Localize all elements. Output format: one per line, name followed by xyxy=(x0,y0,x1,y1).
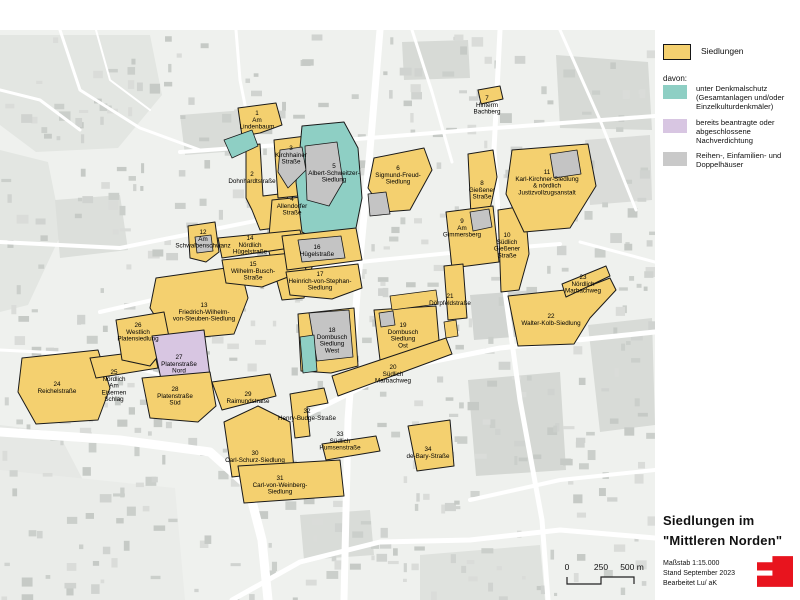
park-area xyxy=(402,40,470,80)
map-document: 1AmLindenbaum2Dohnhardtstraße3Kirchhaine… xyxy=(0,0,800,600)
scale-bar-label: 500 m xyxy=(620,562,644,572)
stand-text: Stand September 2023 xyxy=(663,570,735,577)
side-panel: Siedlungen davon: unter Denkmalschutz (G… xyxy=(660,0,800,600)
nachverdichtung-swatch xyxy=(663,119,687,133)
denkmalschutz-label: unter Denkmalschutz (Gesamtanlagen und/o… xyxy=(696,85,784,112)
settlement-21 xyxy=(444,264,467,320)
siedlungen-label: Siedlungen xyxy=(701,47,744,57)
legend-row-nachverdichtung: bereits beantragte oder abgeschlossene N… xyxy=(663,119,775,146)
overlay-gray xyxy=(470,209,492,231)
overlay-gray xyxy=(368,192,390,216)
bearbeitet-text: Bearbeitet Lu/ aK xyxy=(663,580,717,587)
davon-label: davon: xyxy=(663,74,687,83)
overlay-gray xyxy=(379,311,395,327)
siedlungen-swatch xyxy=(663,44,691,60)
scale-text: Maßstab 1:15.000 xyxy=(663,560,719,567)
scale-bar-label: 250 xyxy=(594,562,608,572)
denkmalschutz-swatch xyxy=(663,85,687,99)
legend-row-denkmalschutz: unter Denkmalschutz (Gesamtanlagen und/o… xyxy=(663,85,784,112)
overlay-gray xyxy=(550,150,581,178)
reihenhaeuser-label: Reihen-, Einfamilien- und Doppelhäuser xyxy=(696,152,781,170)
legend-row-siedlungen: Siedlungen xyxy=(663,44,744,60)
stadtplanungsamt-logo xyxy=(757,556,793,587)
map-title-line2: "Mittleren Norden" xyxy=(663,533,782,548)
map-title-line1: Siedlungen im xyxy=(663,513,754,528)
overlay-gray xyxy=(298,236,345,262)
scale-bar-label: 0 xyxy=(565,562,570,572)
overlay-yellow xyxy=(444,320,458,338)
nachverdichtung-label: bereits beantragte oder abgeschlossene N… xyxy=(696,119,775,146)
map-layers: 1AmLindenbaum2Dohnhardtstraße3Kirchhaine… xyxy=(0,30,659,600)
reihenhaeuser-swatch xyxy=(663,152,687,166)
overlay-teal xyxy=(300,335,317,373)
legend-row-reihenhaeuser: Reihen-, Einfamilien- und Doppelhäuser xyxy=(663,152,781,170)
